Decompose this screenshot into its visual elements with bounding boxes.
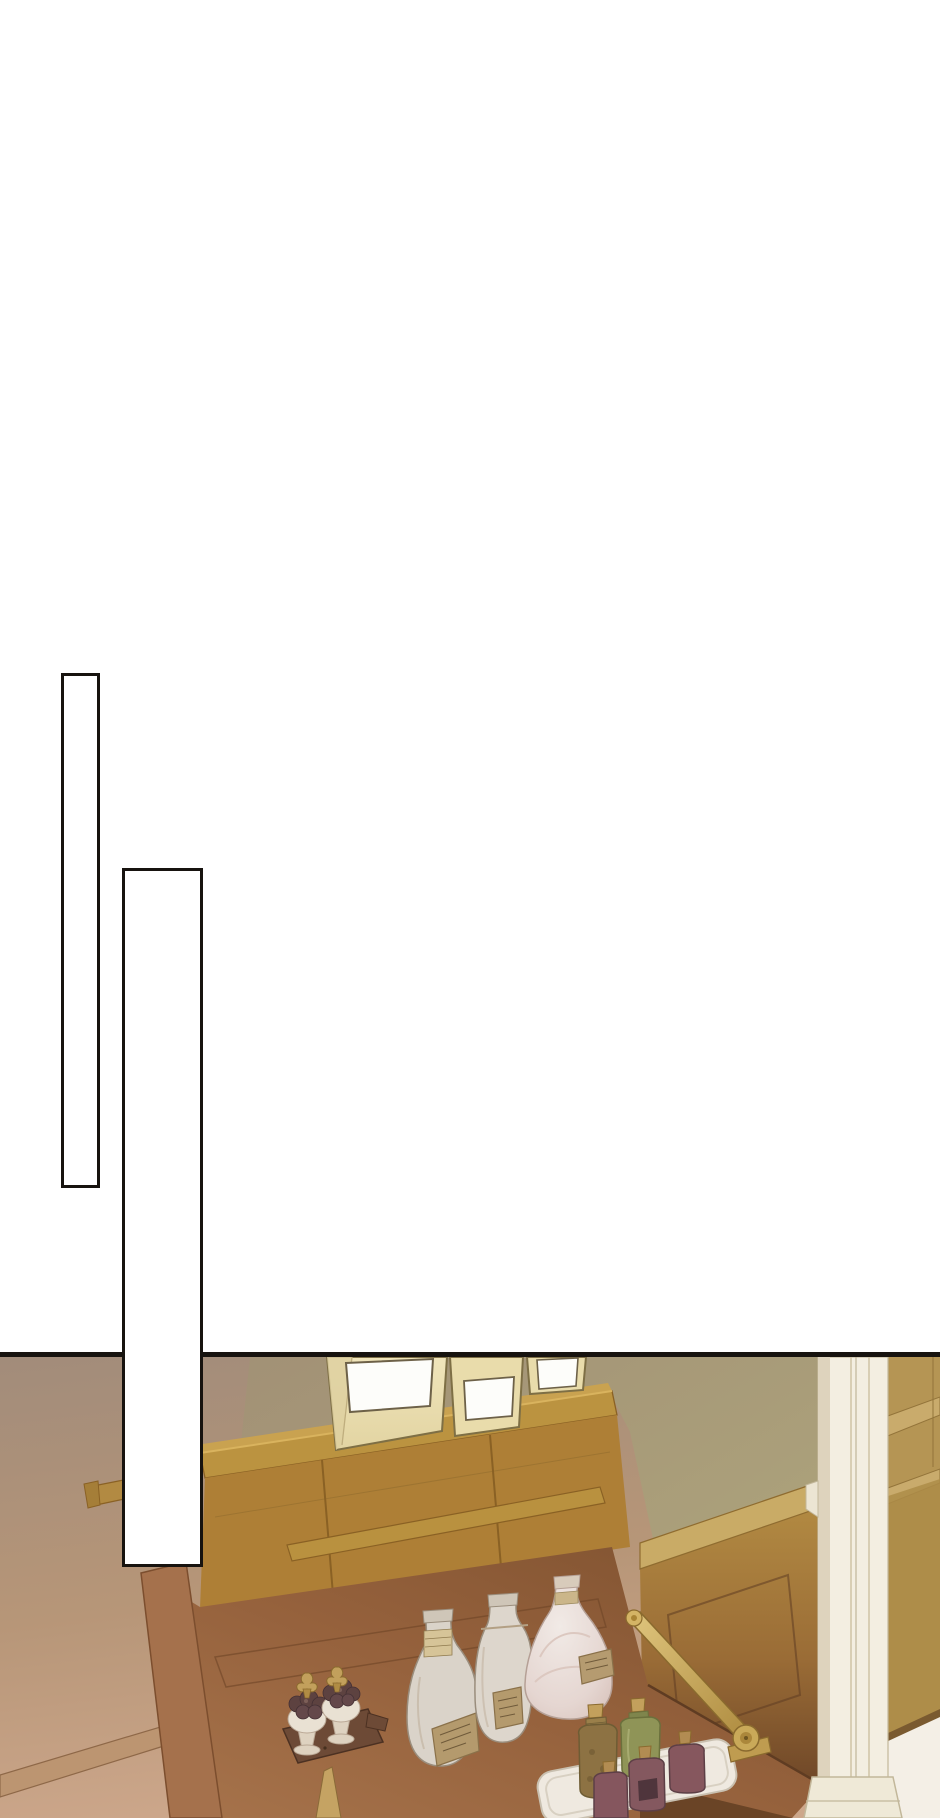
tall-bottle-label bbox=[493, 1687, 523, 1729]
vertical-speech-bubble-1 bbox=[61, 673, 100, 1188]
pillar-base bbox=[804, 1777, 902, 1818]
flask-neck-band bbox=[555, 1591, 578, 1605]
plum-bottle-label bbox=[638, 1778, 658, 1801]
vertical-speech-bubble-2 bbox=[122, 868, 203, 1567]
bag-label-3 bbox=[537, 1358, 578, 1389]
bag-label-1 bbox=[346, 1359, 433, 1412]
decanter-neck-band bbox=[424, 1629, 452, 1657]
paper-bag-2 bbox=[450, 1357, 523, 1436]
bag-label-2 bbox=[464, 1377, 514, 1420]
paper-bag-3 bbox=[527, 1357, 586, 1394]
door-pillar bbox=[804, 1357, 902, 1818]
comic-page bbox=[0, 0, 940, 1818]
right-paneling bbox=[885, 1357, 940, 1752]
